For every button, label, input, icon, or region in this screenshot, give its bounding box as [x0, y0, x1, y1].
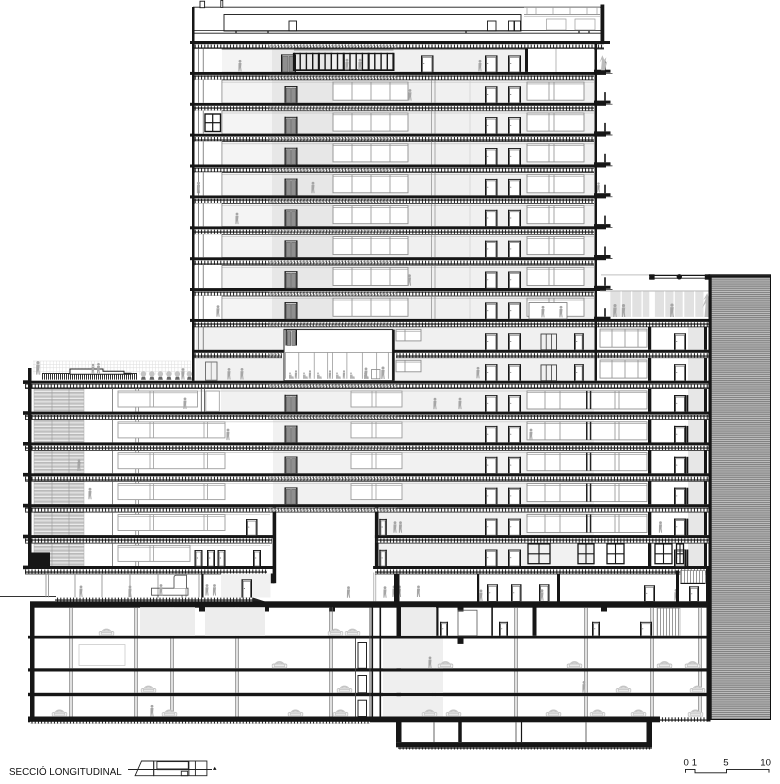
- svg-text:SECCIÓ LONGITUDINAL: SECCIÓ LONGITUDINAL: [9, 767, 122, 778]
- svg-text:10: 10: [760, 758, 771, 769]
- svg-text:0: 0: [684, 758, 689, 769]
- svg-text:5: 5: [723, 758, 728, 769]
- svg-text:1: 1: [692, 758, 697, 769]
